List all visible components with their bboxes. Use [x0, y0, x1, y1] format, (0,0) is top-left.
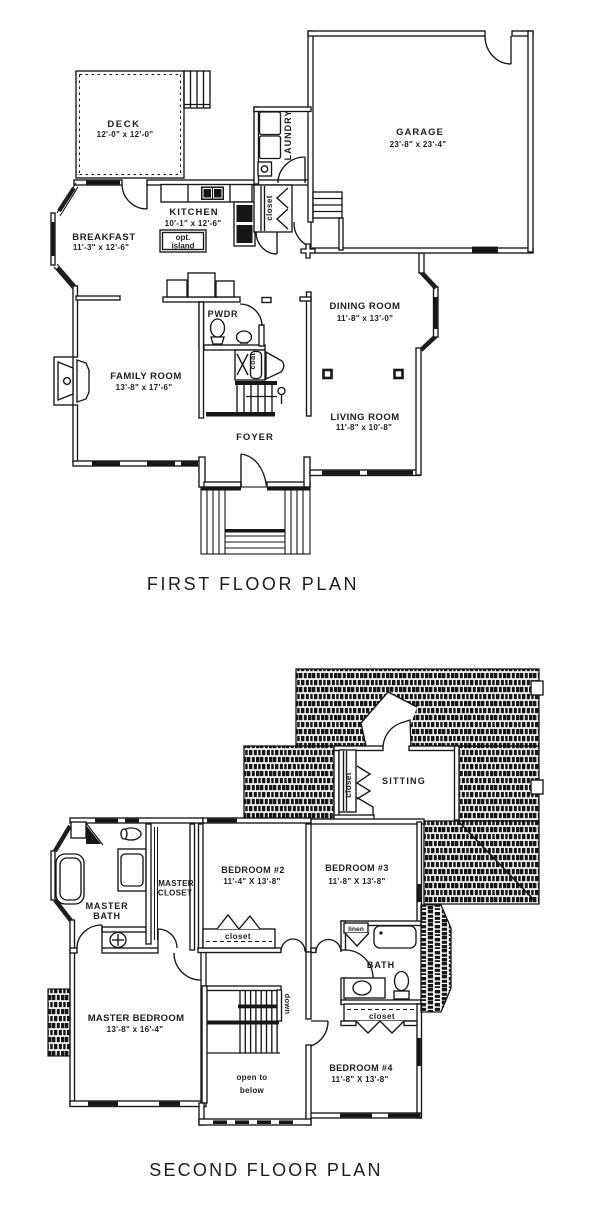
- svg-text:BEDROOM #4: BEDROOM #4: [329, 1063, 393, 1073]
- svg-text:13'-8" x 17'-6": 13'-8" x 17'-6": [116, 383, 173, 392]
- svg-text:11'-8" x 13'-0": 11'-8" x 13'-0": [337, 314, 393, 323]
- svg-text:SITTING: SITTING: [382, 776, 426, 786]
- svg-text:LAUNDRY: LAUNDRY: [283, 110, 293, 161]
- svg-text:BEDROOM #2: BEDROOM #2: [221, 865, 285, 875]
- svg-text:11'-8" X 13'-8": 11'-8" X 13'-8": [328, 877, 385, 886]
- svg-text:FIRST FLOOR PLAN: FIRST FLOOR PLAN: [147, 574, 359, 594]
- svg-text:BEDROOM #3: BEDROOM #3: [325, 863, 389, 873]
- svg-text:11'-3" x 12'-6": 11'-3" x 12'-6": [73, 243, 129, 252]
- svg-text:island: island: [171, 242, 194, 251]
- svg-text:BATH: BATH: [367, 960, 395, 970]
- svg-text:DECK: DECK: [107, 119, 140, 130]
- svg-text:KITCHEN: KITCHEN: [169, 207, 218, 218]
- svg-text:below: below: [240, 1086, 265, 1095]
- svg-text:MASTER: MASTER: [158, 879, 194, 888]
- svg-text:13'-8" x 16'-4": 13'-8" x 16'-4": [107, 1025, 164, 1034]
- svg-text:11'-8" x 10'-8": 11'-8" x 10'-8": [336, 423, 392, 432]
- svg-text:11'-8" X 13'-8": 11'-8" X 13'-8": [331, 1075, 388, 1084]
- svg-text:12'-0" x 12'-0": 12'-0" x 12'-0": [97, 130, 154, 139]
- svg-text:open to: open to: [237, 1073, 268, 1082]
- svg-text:MASTER BEDROOM: MASTER BEDROOM: [88, 1013, 185, 1024]
- svg-text:down: down: [283, 994, 292, 1015]
- svg-text:FOYER: FOYER: [236, 432, 274, 443]
- svg-text:closet: closet: [344, 772, 353, 798]
- svg-text:linen: linen: [348, 926, 364, 933]
- svg-text:23'-8" x 23'-4": 23'-8" x 23'-4": [390, 140, 447, 149]
- svg-text:closet: closet: [225, 932, 251, 941]
- svg-text:BREAKFAST: BREAKFAST: [72, 232, 135, 243]
- svg-text:11'-4" X 13'-8": 11'-4" X 13'-8": [223, 877, 280, 886]
- svg-text:CLOSET: CLOSET: [158, 889, 192, 898]
- svg-text:GARAGE: GARAGE: [396, 127, 444, 138]
- svg-text:MASTER: MASTER: [86, 901, 129, 911]
- svg-text:LIVING ROOM: LIVING ROOM: [330, 412, 399, 423]
- svg-text:coat: coat: [248, 352, 257, 369]
- svg-text:10'-1" x 12'-6": 10'-1" x 12'-6": [165, 219, 222, 228]
- svg-text:SECOND FLOOR PLAN: SECOND FLOOR PLAN: [149, 1160, 382, 1180]
- svg-text:closet: closet: [265, 195, 274, 221]
- svg-text:FAMILY ROOM: FAMILY ROOM: [110, 371, 181, 382]
- svg-text:closet: closet: [369, 1012, 395, 1021]
- svg-text:BATH: BATH: [93, 911, 121, 921]
- svg-text:PWDR: PWDR: [208, 309, 239, 319]
- svg-text:DINING ROOM: DINING ROOM: [330, 301, 401, 312]
